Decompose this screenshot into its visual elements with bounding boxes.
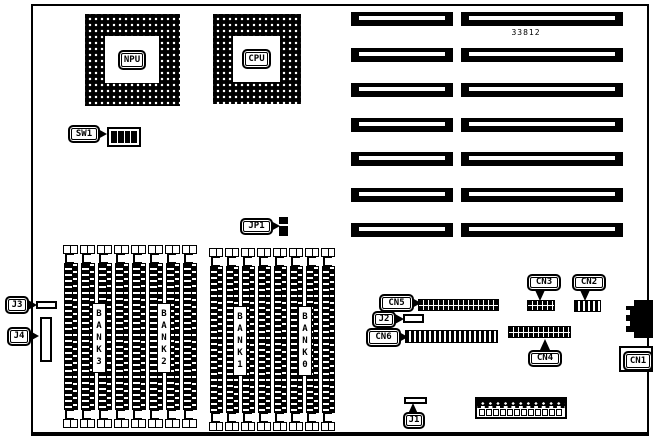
simm-socket <box>182 245 197 428</box>
cn3-header <box>527 300 555 311</box>
motherboard-diagram: NPU CPU SW1 33812 JP1 BANK3 BANK2 BANK1 … <box>0 0 656 442</box>
cpu-socket-center: CPU <box>233 36 280 82</box>
bank2-label: BANK2 <box>157 303 171 373</box>
expansion-slot <box>351 152 453 166</box>
power-connector-pins <box>477 399 565 408</box>
expansion-slot <box>351 223 453 237</box>
power-terminal-square <box>542 409 548 416</box>
cn5-callout: CN5 <box>379 294 414 312</box>
expansion-slot <box>351 12 453 26</box>
cn2-pointer-icon <box>580 290 590 301</box>
cn2-callout: CN2 <box>572 274 606 291</box>
jp1-callout: JP1 <box>240 218 273 235</box>
expansion-slot <box>351 118 453 132</box>
dip-switch-cell <box>125 131 131 143</box>
power-terminal-square <box>556 409 562 416</box>
part-number: 33812 <box>500 28 552 37</box>
power-terminal-square <box>486 409 492 416</box>
expansion-slot <box>351 83 453 97</box>
cpu-label: CPU <box>242 49 270 69</box>
dip-switch-cell <box>131 131 137 143</box>
dip-switch-cell <box>118 131 124 143</box>
dip-switch-cell <box>111 131 117 143</box>
power-terminal-square <box>514 409 520 416</box>
simm-socket <box>63 245 78 428</box>
expansion-slot <box>461 12 623 26</box>
cpu-socket: CPU <box>213 14 301 104</box>
power-terminal-square <box>521 409 527 416</box>
cn4-callout: CN4 <box>528 350 562 367</box>
power-terminal-square <box>535 409 541 416</box>
j2-callout: J2 <box>372 311 396 328</box>
cn2-header <box>574 300 601 312</box>
power-terminal-square <box>500 409 506 416</box>
expansion-slot <box>351 48 453 62</box>
cn6-header <box>405 330 498 343</box>
npu-socket: NPU <box>85 14 180 106</box>
cn4-pointer-icon <box>540 339 550 350</box>
simm-socket <box>321 248 335 431</box>
power-connector <box>475 397 567 419</box>
simm-socket <box>273 248 287 431</box>
expansion-slot <box>461 83 623 97</box>
expansion-slot <box>461 48 623 62</box>
expansion-slot <box>461 223 623 237</box>
cn3-pointer-icon <box>535 290 545 301</box>
din-notch-top <box>626 310 630 315</box>
power-terminal-square <box>479 409 485 416</box>
cn1-callout: CN1 <box>623 351 653 371</box>
expansion-slot <box>461 118 623 132</box>
expansion-slot <box>461 152 623 166</box>
simm-socket <box>209 248 223 431</box>
expansion-slot <box>461 188 623 202</box>
bank3-label: BANK3 <box>92 303 106 373</box>
bank0-label: BANK0 <box>298 306 312 376</box>
keyboard-din-connector <box>634 300 653 338</box>
power-terminal-square <box>549 409 555 416</box>
simm-socket <box>257 248 271 431</box>
j4-callout: J4 <box>7 327 31 346</box>
cn6-pointer-icon <box>399 332 408 342</box>
jp1-jumper-block <box>279 217 288 236</box>
cn6-callout: CN6 <box>366 328 401 347</box>
cn5-pointer-icon <box>412 298 421 308</box>
power-terminal-square <box>493 409 499 416</box>
cn1-box: CN1 <box>619 346 653 372</box>
j3-callout: J3 <box>5 296 29 314</box>
simm-socket <box>114 245 129 428</box>
cn5-header <box>418 299 499 311</box>
npu-socket-center: NPU <box>105 36 159 83</box>
jp1-pointer-icon <box>271 221 280 231</box>
j3-header <box>36 301 57 309</box>
j1-callout: J1 <box>403 412 425 429</box>
j4-pointer-icon <box>30 331 39 341</box>
expansion-slot <box>351 188 453 202</box>
j4-header <box>40 317 52 362</box>
sw1-pointer-icon <box>98 129 107 139</box>
j3-pointer-icon <box>28 300 37 310</box>
cn3-callout: CN3 <box>527 274 561 291</box>
j2-header <box>403 314 424 323</box>
din-notch-bottom <box>626 321 630 326</box>
sw1-callout: SW1 <box>68 125 100 143</box>
bank1-label: BANK1 <box>233 306 247 376</box>
npu-label: NPU <box>118 50 146 70</box>
power-terminal-square <box>528 409 534 416</box>
sw1-dip-switch <box>107 127 141 147</box>
simm-socket <box>131 245 146 428</box>
j2-pointer-icon <box>395 314 404 324</box>
power-connector-terminals <box>477 408 565 416</box>
power-terminal-square <box>507 409 513 416</box>
cn4-header <box>508 326 571 338</box>
